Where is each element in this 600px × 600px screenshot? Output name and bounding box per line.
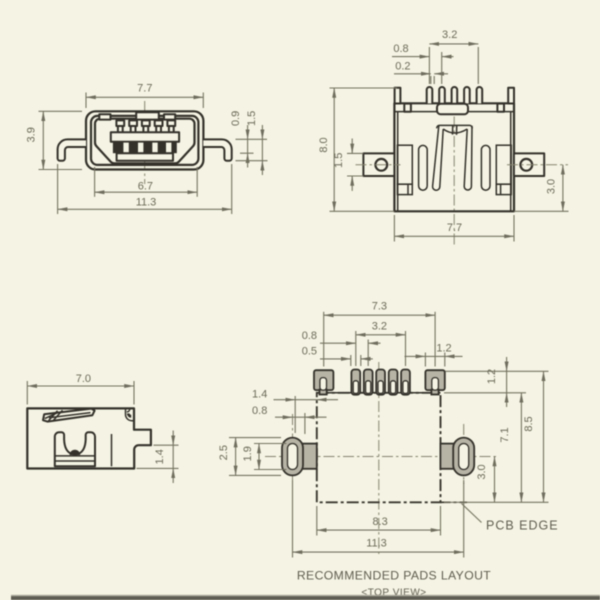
svg-text:0.5: 0.5 [302,345,317,357]
svg-text:0.8: 0.8 [252,405,267,417]
svg-text:2.5: 2.5 [218,445,230,460]
svg-text:8.0: 8.0 [318,137,330,152]
svg-text:0.8: 0.8 [393,43,408,55]
svg-text:8.5: 8.5 [523,416,535,431]
svg-text:0.8: 0.8 [302,330,317,342]
svg-text:3.2: 3.2 [442,29,457,41]
svg-text:11.3: 11.3 [136,197,157,209]
svg-text:0.2: 0.2 [395,60,410,72]
svg-text:1.4: 1.4 [252,388,267,400]
svg-text:PCB EDGE: PCB EDGE [486,519,559,533]
svg-text:3.0: 3.0 [546,179,558,194]
svg-text:3.2: 3.2 [372,321,387,333]
svg-text:7.7: 7.7 [447,222,462,234]
svg-text:0.9: 0.9 [230,111,242,126]
svg-text:1.4: 1.4 [154,449,166,464]
svg-text:7.1: 7.1 [499,427,511,442]
svg-text:RECOMMENDED PADS LAYOUT: RECOMMENDED PADS LAYOUT [297,569,491,583]
svg-text:7.7: 7.7 [137,83,152,95]
svg-text:1.5: 1.5 [333,153,345,168]
svg-text:1.2: 1.2 [436,342,451,354]
svg-text:3.0: 3.0 [476,464,488,479]
svg-text:11.3: 11.3 [366,537,387,549]
svg-text:7.3: 7.3 [372,301,387,313]
svg-text:7.0: 7.0 [76,373,91,385]
svg-text:1.5: 1.5 [246,111,258,126]
svg-text:3.9: 3.9 [26,127,38,142]
svg-text:6.7: 6.7 [138,181,153,193]
svg-text:1.2: 1.2 [486,369,498,384]
svg-text:8.3: 8.3 [372,516,387,528]
svg-text:1.9: 1.9 [242,446,254,461]
